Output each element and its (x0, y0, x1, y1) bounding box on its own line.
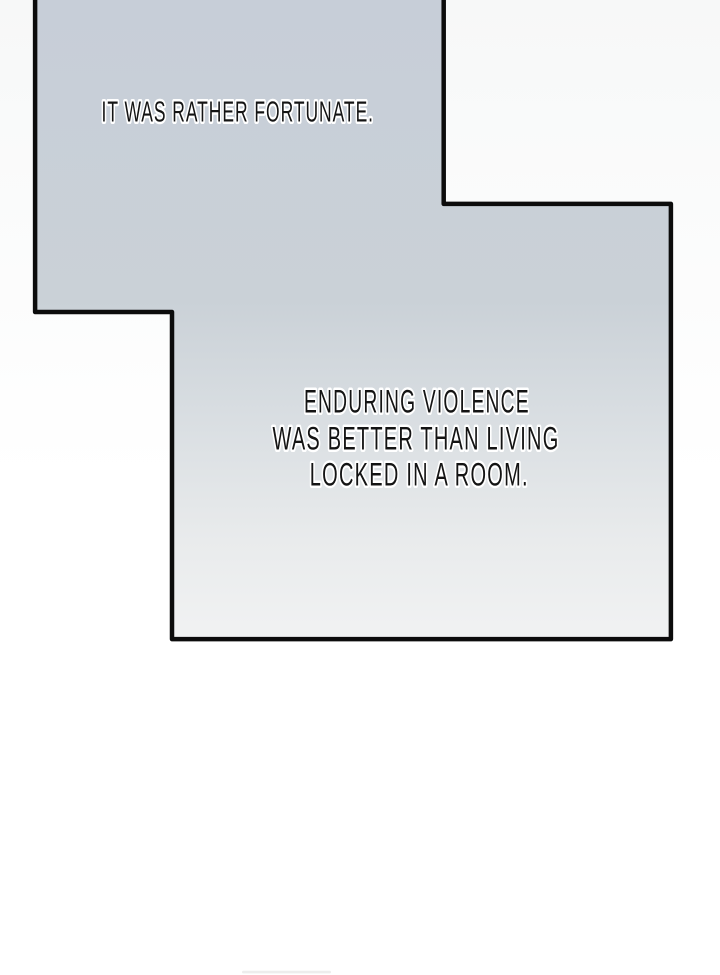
svg-text:LOCKED IN A ROOM.: LOCKED IN A ROOM. (310, 457, 529, 493)
svg-text:ENDURING VIOLENCE: ENDURING VIOLENCE (304, 384, 530, 420)
svg-text:IT WAS RATHER FORTUNATE.: IT WAS RATHER FORTUNATE. (102, 97, 375, 129)
svg-text:WAS BETTER THAN LIVING: WAS BETTER THAN LIVING (273, 420, 560, 456)
